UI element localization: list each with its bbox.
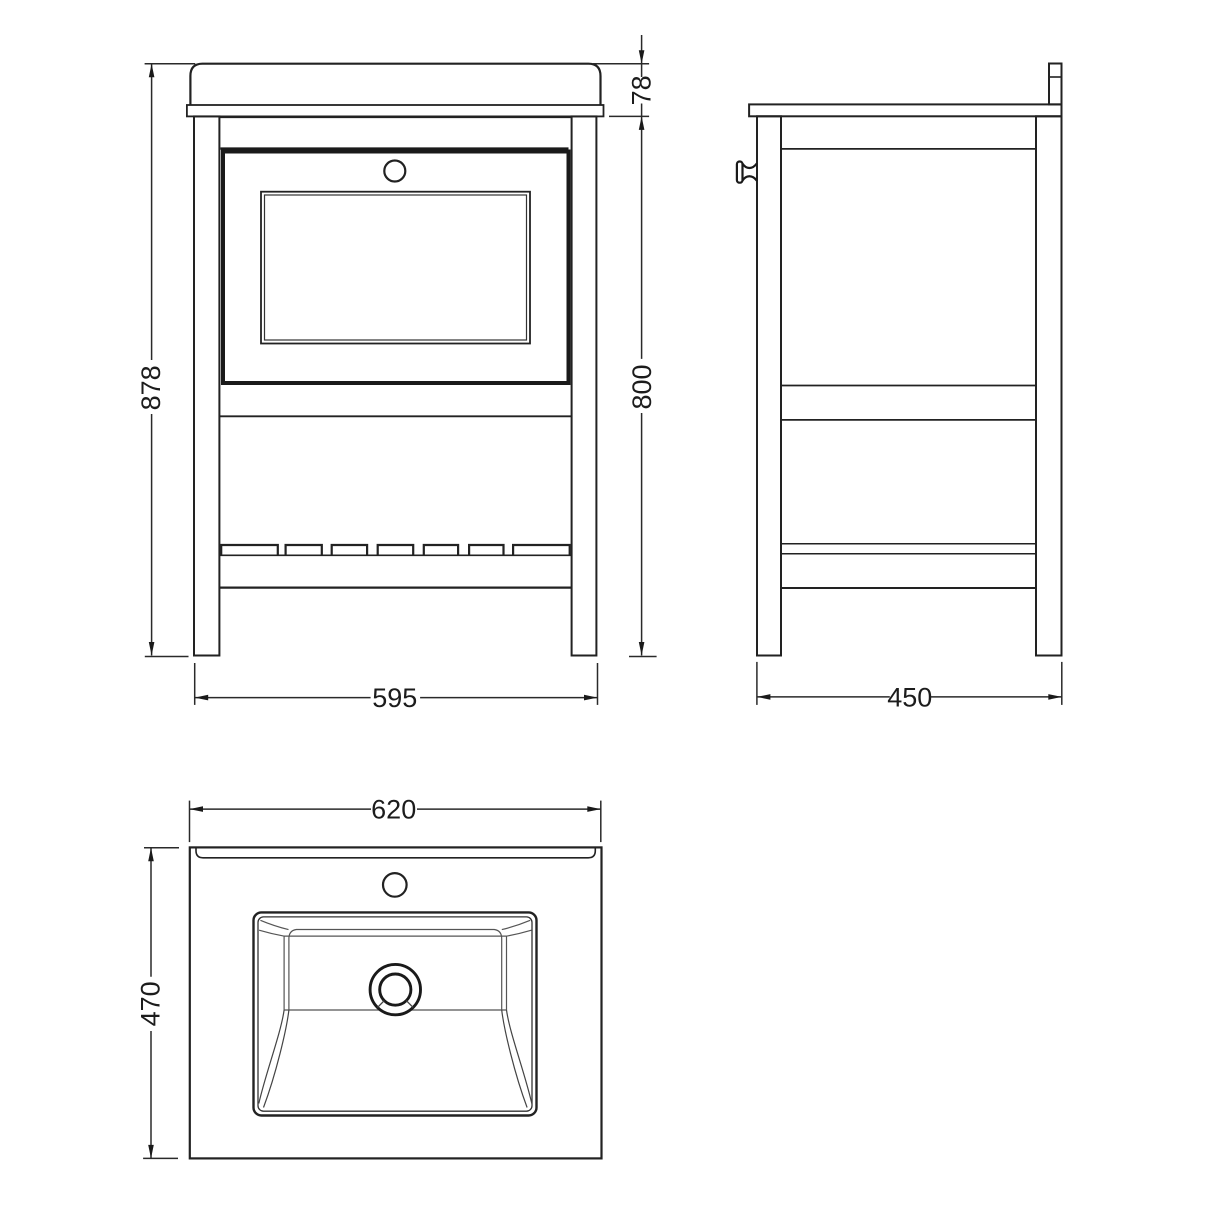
svg-text:78: 78: [627, 75, 657, 105]
svg-text:800: 800: [627, 364, 657, 409]
svg-text:595: 595: [372, 683, 417, 713]
svg-text:878: 878: [136, 365, 166, 410]
svg-text:470: 470: [136, 981, 166, 1026]
svg-text:620: 620: [371, 795, 416, 825]
svg-text:450: 450: [887, 682, 932, 712]
